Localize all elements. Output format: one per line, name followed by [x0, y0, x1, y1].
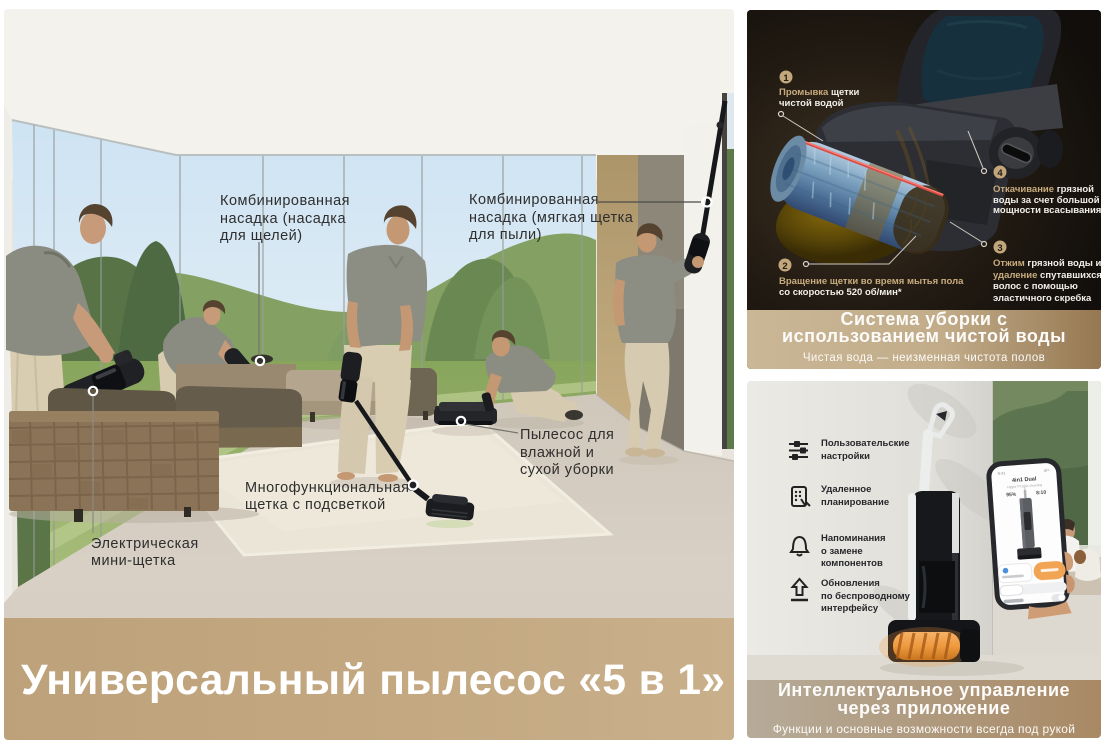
svg-text:95%: 95%	[1006, 492, 1017, 499]
svg-text:2: 2	[782, 261, 787, 272]
svg-text:a/=: a/=	[1044, 467, 1051, 472]
svg-text:4: 4	[997, 168, 1003, 179]
svg-text:9:41: 9:41	[998, 470, 1007, 476]
svg-text:3: 3	[997, 243, 1002, 254]
svg-text:8:10: 8:10	[1036, 490, 1047, 497]
svg-text:1: 1	[783, 73, 789, 84]
